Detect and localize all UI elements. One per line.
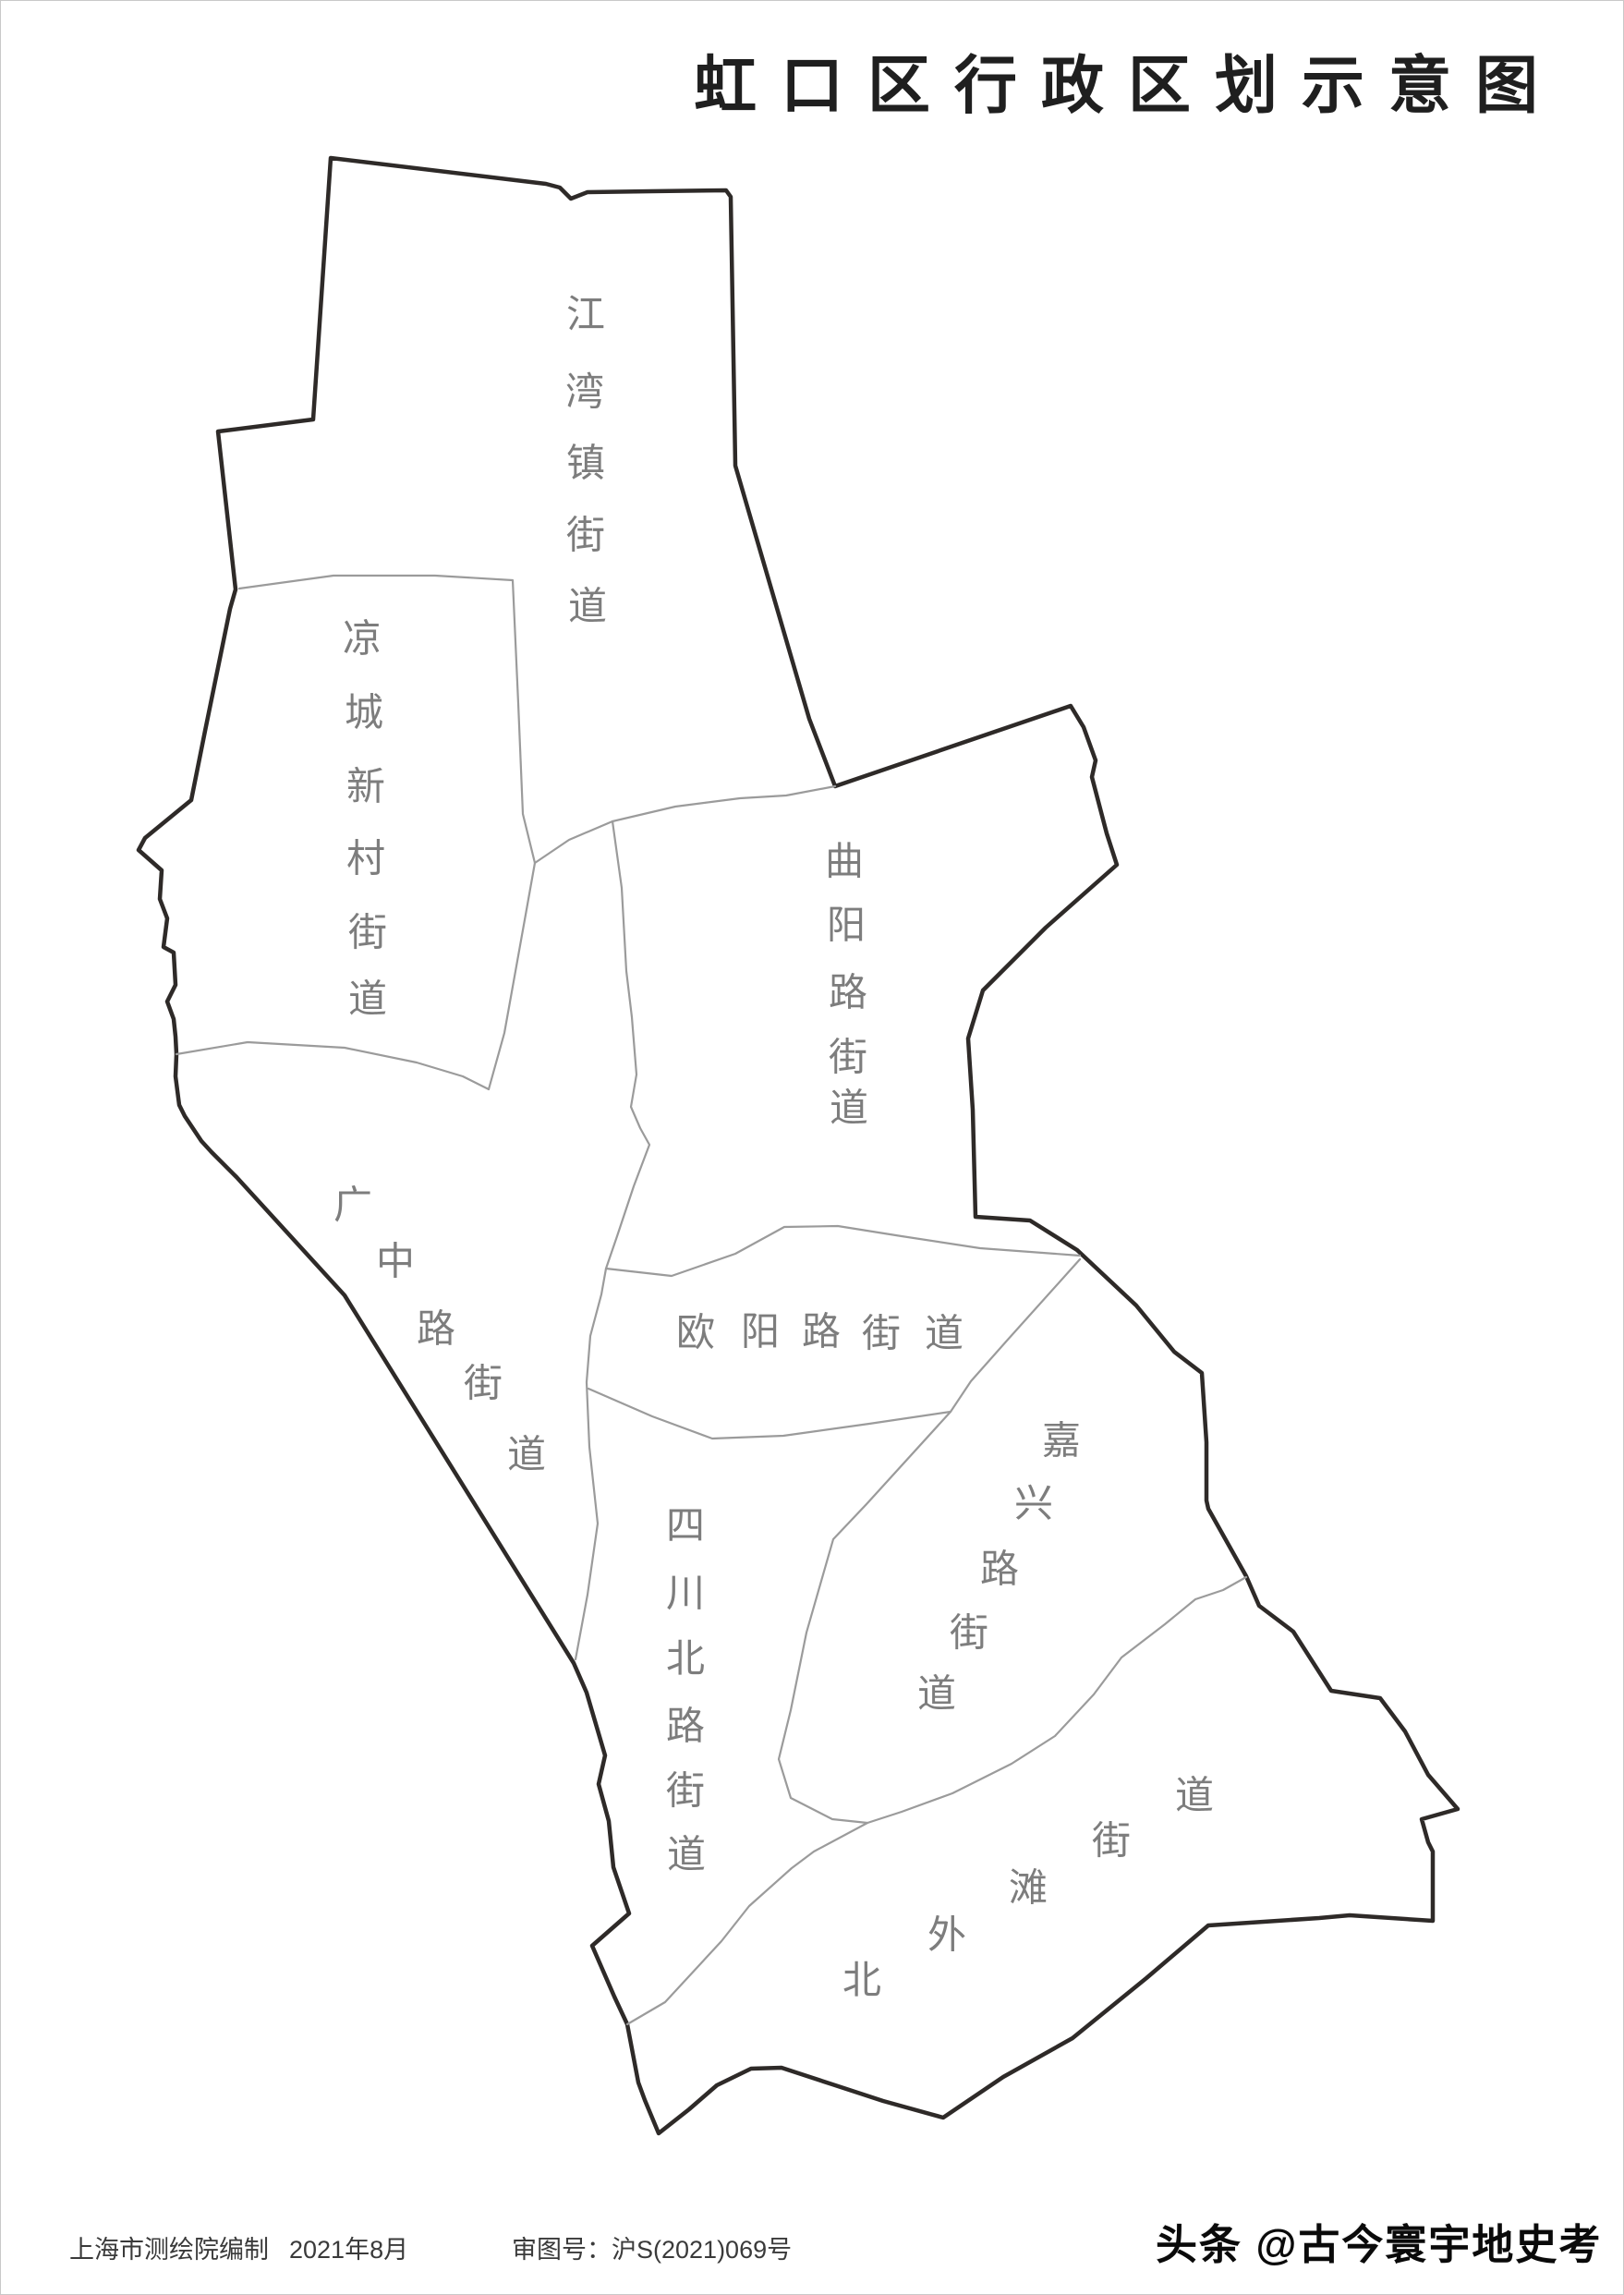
region-label-guangzhong-road-subdistrict: 路 (417, 1307, 455, 1351)
region-label-jiangwan-town-subdistrict: 镇 (566, 442, 605, 485)
region-label-jiangwan-town-subdistrict: 街 (566, 514, 605, 557)
region-label-quyang-road-subdistrict: 阳 (827, 904, 866, 947)
region-label-jiaxing-road-subdistrict: 道 (917, 1672, 956, 1716)
region-label-ouyang-road-subdistrict: 路 (802, 1310, 841, 1354)
district-outer-boundary (139, 158, 1458, 2133)
region-label-jiaxing-road-subdistrict: 嘉 (1042, 1419, 1081, 1463)
region-label-jiaxing-road-subdistrict: 兴 (1014, 1482, 1053, 1525)
region-label-beiwaitan-subdistrict: 北 (842, 1959, 881, 2002)
region-label-beiwaitan-subdistrict: 滩 (1009, 1866, 1048, 1910)
watermark-toutiao: 头条 @古今寰宇地史考 (1156, 2211, 1618, 2271)
region-label-liangcheng-xincun-subdistrict: 村 (346, 837, 385, 880)
region-label-beiwaitan-subdistrict: 街 (1092, 1819, 1131, 1863)
map-sheet: 虹口区行政区划示意图 江湾镇街道凉城新村街道曲阳路街道广中路街道欧阳路街道四川北… (0, 0, 1624, 2295)
region-label-ouyang-road-subdistrict: 阳 (741, 1310, 780, 1354)
region-label-jiaxing-road-subdistrict: 路 (980, 1548, 1019, 1591)
region-label-guangzhong-road-subdistrict: 道 (507, 1433, 546, 1476)
region-label-jiaxing-road-subdistrict: 街 (950, 1611, 988, 1655)
region-label-sichuanbei-road-subdistrict: 川 (666, 1572, 705, 1615)
region-label-beiwaitan-subdistrict: 外 (927, 1913, 966, 1957)
footer-publisher: 上海市测绘院编制 (69, 2229, 269, 2265)
region-label-jiangwan-town-subdistrict: 湾 (565, 370, 604, 414)
region-label-quyang-road-subdistrict: 路 (829, 971, 867, 1014)
region-label-jiangwan-town-subdistrict: 道 (568, 585, 607, 628)
footer-approval-number: 审图号：沪S(2021)069号 (512, 2229, 792, 2265)
region-label-liangcheng-xincun-subdistrict: 街 (348, 911, 387, 954)
region-label-sichuanbei-road-subdistrict: 路 (666, 1705, 705, 1748)
region-label-guangzhong-road-subdistrict: 街 (464, 1362, 503, 1405)
region-label-ouyang-road-subdistrict: 街 (862, 1312, 901, 1355)
region-label-quyang-road-subdistrict: 道 (830, 1087, 868, 1130)
region-label-sichuanbei-road-subdistrict: 道 (667, 1833, 706, 1876)
region-label-sichuanbei-road-subdistrict: 北 (666, 1637, 705, 1681)
region-label-jiangwan-town-subdistrict: 江 (566, 293, 605, 336)
footer-date: 2021年8月 (289, 2229, 408, 2265)
region-label-liangcheng-xincun-subdistrict: 新 (346, 765, 385, 808)
region-label-quyang-road-subdistrict: 街 (829, 1036, 867, 1079)
district-map: 江湾镇街道凉城新村街道曲阳路街道广中路街道欧阳路街道四川北路街道嘉兴路街道北外滩… (1, 1, 1624, 2295)
region-label-liangcheng-xincun-subdistrict: 道 (348, 977, 387, 1021)
region-label-liangcheng-xincun-subdistrict: 城 (345, 691, 383, 735)
region-label-sichuanbei-road-subdistrict: 街 (666, 1769, 705, 1813)
region-label-quyang-road-subdistrict: 曲 (825, 840, 864, 883)
region-label-guangzhong-road-subdistrict: 广 (333, 1184, 372, 1227)
region-label-guangzhong-road-subdistrict: 中 (376, 1240, 415, 1283)
region-label-ouyang-road-subdistrict: 欧 (676, 1311, 715, 1354)
region-label-ouyang-road-subdistrict: 道 (925, 1312, 963, 1355)
region-label-liangcheng-xincun-subdistrict: 凉 (343, 617, 382, 661)
region-label-beiwaitan-subdistrict: 道 (1175, 1774, 1214, 1817)
region-label-sichuanbei-road-subdistrict: 四 (666, 1504, 705, 1548)
